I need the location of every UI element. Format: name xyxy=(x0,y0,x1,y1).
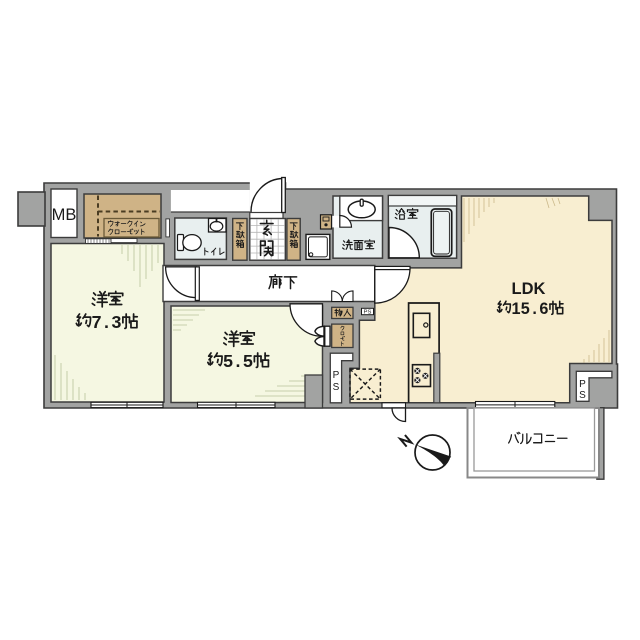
svg-text:.: . xyxy=(104,312,109,332)
svg-text:S: S xyxy=(579,390,586,401)
svg-text:S: S xyxy=(333,382,340,393)
svg-text:.: . xyxy=(236,351,241,371)
svg-text:MB: MB xyxy=(52,206,77,224)
svg-text:3: 3 xyxy=(111,312,121,332)
svg-text:P: P xyxy=(579,379,586,390)
svg-text:.: . xyxy=(532,300,537,318)
svg-text:5: 5 xyxy=(243,351,253,371)
svg-text:5: 5 xyxy=(521,300,530,318)
svg-text:7: 7 xyxy=(92,312,102,332)
svg-text:P: P xyxy=(333,370,340,381)
svg-text:5: 5 xyxy=(223,351,233,371)
svg-text:1: 1 xyxy=(511,300,520,318)
svg-text:PS: PS xyxy=(364,310,372,316)
svg-text:6: 6 xyxy=(539,300,548,318)
svg-text:LDK: LDK xyxy=(512,280,546,298)
